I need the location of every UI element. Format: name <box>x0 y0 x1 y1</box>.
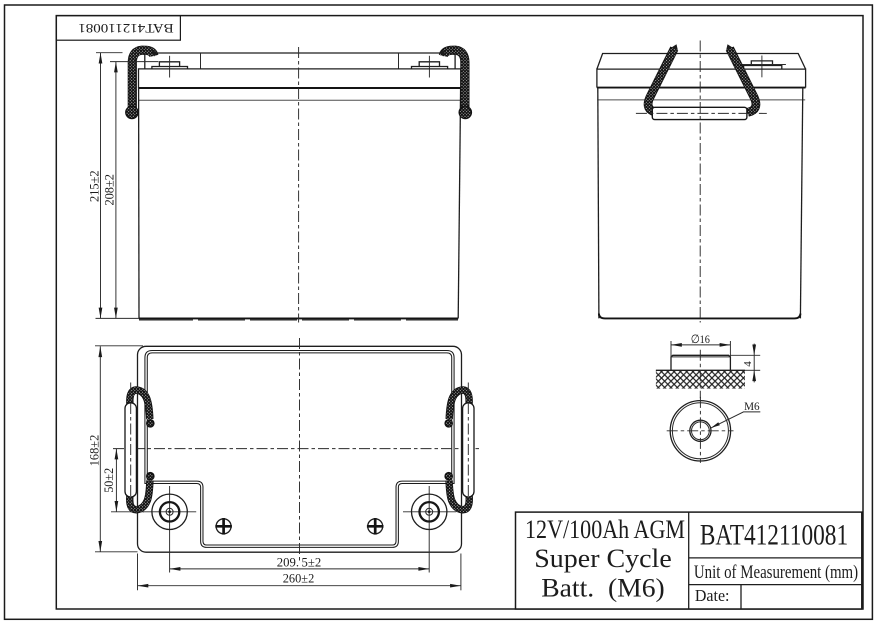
svg-text:168±2: 168±2 <box>88 435 102 467</box>
svg-text:Batt. (M6): Batt. (M6) <box>541 573 665 602</box>
svg-text:4: 4 <box>742 361 754 367</box>
svg-text:BAT412110081: BAT412110081 <box>700 520 848 552</box>
svg-text:260±2: 260±2 <box>283 572 315 586</box>
svg-text:208±2: 208±2 <box>102 174 116 206</box>
svg-text:∅16: ∅16 <box>691 332 710 346</box>
svg-text:50±2: 50±2 <box>102 468 116 493</box>
svg-text:Super Cycle: Super Cycle <box>534 544 672 573</box>
svg-text:Unit of Measurement (mm): Unit of Measurement (mm) <box>694 562 858 583</box>
svg-text:M6: M6 <box>744 399 760 413</box>
svg-text:BAT412110081: BAT412110081 <box>78 21 174 35</box>
svg-text:12V/100Ah AGM: 12V/100Ah AGM <box>525 515 685 544</box>
svg-text:Date:: Date: <box>695 586 730 605</box>
svg-text:209. 5±2: 209. 5±2 <box>277 555 322 569</box>
svg-text:215±2: 215±2 <box>87 170 101 202</box>
